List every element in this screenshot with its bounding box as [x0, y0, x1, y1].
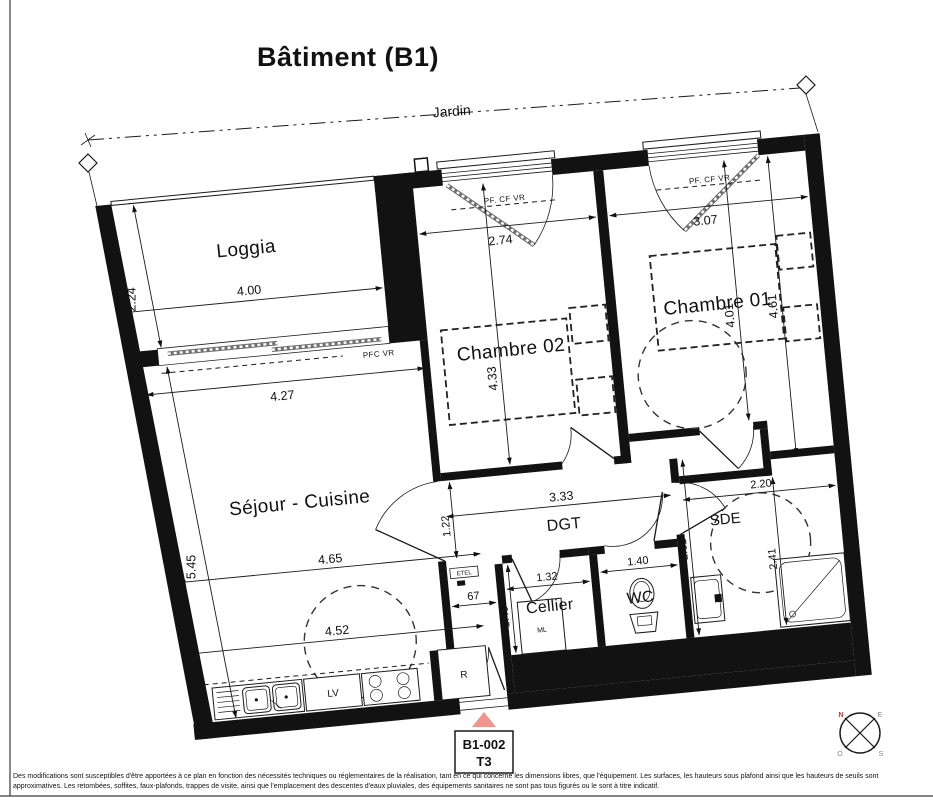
compass-icon: N E S O [837, 712, 883, 758]
compass-west: O [837, 751, 843, 758]
fridge-label: R [460, 669, 468, 681]
room-label-sejour: Séjour - Cuisine [228, 486, 371, 520]
apartment-plan: PFC VR PF. CF VR PF. CF VR [94, 120, 872, 744]
floor-plan-page: Bâtiment (B1) Jardin [0, 0, 933, 800]
compass-north: N [838, 712, 843, 719]
cooktop [361, 668, 420, 705]
loggia-window-label: PFC VR [362, 348, 394, 360]
dishwasher-label: LV [327, 688, 340, 700]
room-label-chambre01: Chambre 01 [663, 289, 773, 320]
turning-circle-chambre01 [633, 316, 751, 434]
dishwasher: LV [304, 674, 363, 711]
unit-ref: B1-002 [463, 737, 506, 752]
loggia-parapet [111, 176, 374, 205]
chambre01-door [700, 426, 758, 472]
dim-sde-width: 2.20 [750, 477, 772, 491]
unit-type: T3 [476, 754, 491, 769]
disclaimer-line-2: approximatives. Les retombées, soffites,… [13, 783, 659, 790]
building-title: Bâtiment (B1) [257, 42, 439, 72]
compass-east: E [878, 712, 883, 719]
room-label-loggia: Loggia [216, 236, 277, 263]
wall-loggia-right [374, 173, 428, 344]
disclaimer-line-1: Des modifications sont susceptibles d'êt… [13, 773, 878, 780]
dim-loggia-door: 4.27 [270, 388, 296, 404]
floor-plan-drawing: Bâtiment (B1) Jardin [0, 0, 933, 800]
wc-door [600, 492, 667, 548]
room-label-cellier: Cellier [525, 596, 574, 618]
chambre02-window-label: PF. CF VR [483, 193, 525, 206]
bed-outline-chambre02 [441, 318, 576, 425]
dim-loggia-depth: 2.24 [125, 287, 139, 311]
fridge: R [437, 646, 490, 700]
boundary-diamond-right [797, 76, 815, 94]
room-label-dgt: DGT [546, 515, 582, 535]
entry-marker-triangle [472, 712, 496, 727]
dim-sde-height-left: 2.61 [677, 538, 691, 560]
dim-cellier-depth: 1.40 [499, 606, 513, 628]
boundary-diamond-left [79, 154, 97, 172]
garden-label: Jardin [432, 102, 471, 121]
electrical-panel: ETEL [450, 566, 480, 587]
dim-chambre01-depth: 4.01 [722, 303, 738, 329]
dim-dgt-length: 3.33 [549, 489, 575, 505]
dim-sejour-width2: 4.52 [324, 623, 350, 639]
wall-left [95, 199, 216, 744]
dim-chambre01-width: 3.07 [693, 212, 719, 228]
wall-post-marker [414, 158, 428, 172]
dim-sejour-width1: 4.65 [317, 551, 343, 567]
dim-chambre01-depth2: 4.61 [765, 293, 781, 319]
unit-tag: B1-002 T3 [455, 731, 513, 773]
washing-machine-label: ML [537, 627, 547, 635]
chambre01-window-label: PF. CF VR [689, 173, 731, 186]
dim-sejour-depth: 5.45 [185, 555, 199, 579]
dim-sde-depth: 2.41 [766, 548, 780, 570]
dim-chambre02-depth: 4.33 [485, 366, 501, 392]
dim-chambre02-width: 2.74 [488, 232, 514, 248]
kitchen-sink [212, 679, 305, 719]
room-label-sde: SDE [709, 510, 741, 530]
chambre02-door [559, 424, 614, 464]
sejour-door [372, 481, 445, 567]
dim-loggia-width: 4.00 [236, 282, 262, 298]
dim-cellier-width: 1.32 [536, 570, 558, 584]
dim-dgt-width: 1.22 [440, 515, 454, 537]
compass-south: S [879, 751, 884, 758]
dim-entry-width: 67 [467, 590, 480, 603]
dim-wc-width: 1.40 [627, 555, 649, 569]
loggia-window: PFC VR [157, 326, 395, 379]
room-label-chambre02: Chambre 02 [456, 335, 566, 366]
room-label-wc: WC [626, 588, 655, 608]
